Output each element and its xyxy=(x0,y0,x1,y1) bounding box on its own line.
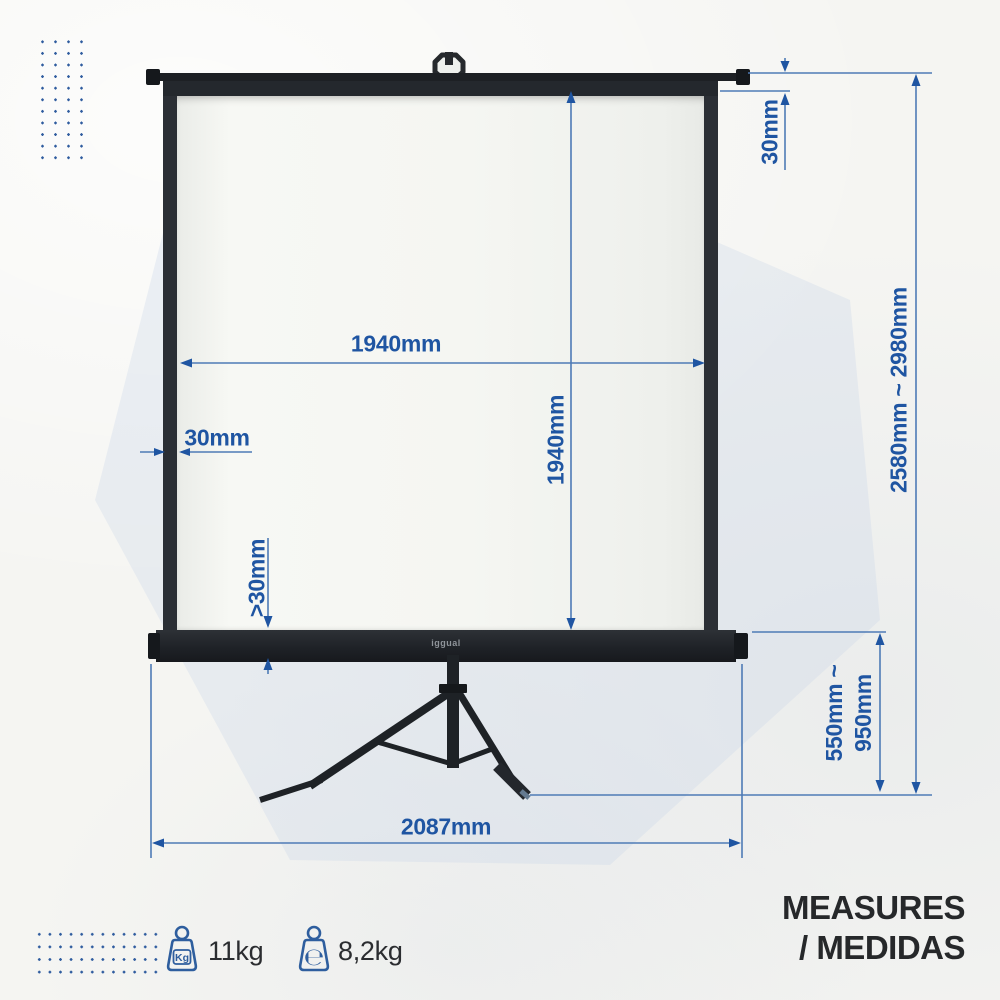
rod-end-cap-right xyxy=(736,69,750,85)
top-border-label: 30mm xyxy=(757,99,784,164)
section-title: MEASURES / MEDIDAS xyxy=(782,888,965,968)
title-spanish: / MEDIDAS xyxy=(782,928,965,968)
diagram-canvas: iggual xyxy=(0,0,1000,1000)
screen-top-rod xyxy=(152,73,742,81)
weight-kg-icon: Kg xyxy=(164,924,200,974)
stand-height-label: 550mm ~ 950mm xyxy=(820,665,878,762)
base-width-label: 2087mm xyxy=(401,814,491,841)
total-height-label: 2580mm ~ 2980mm xyxy=(886,287,913,493)
stand-height-max: 950mm xyxy=(850,674,876,752)
screen-top-slat xyxy=(163,81,718,96)
bottom-border-label: >30mm xyxy=(244,539,271,617)
estimated-badge: ℮ xyxy=(304,943,325,971)
kg-badge: Kg xyxy=(175,952,189,964)
gross-weight-value: 11kg xyxy=(208,936,263,967)
dot-grid-bottom-left xyxy=(34,928,158,978)
screen-width-label: 1940mm xyxy=(351,331,441,358)
title-english: MEASURES xyxy=(782,888,965,928)
screen-height-label: 1940mm xyxy=(543,395,570,485)
weight-estimated-icon: ℮ xyxy=(296,924,332,974)
stand-height-min: 550mm ~ xyxy=(821,665,847,762)
brand-logo: iggual xyxy=(156,638,736,648)
rod-end-cap-left xyxy=(146,69,160,85)
case-end-cap-right xyxy=(734,633,748,659)
dot-grid-top-left xyxy=(36,36,86,164)
net-weight-value: 8,2kg xyxy=(338,936,403,967)
left-border-label: 30mm xyxy=(184,425,249,452)
